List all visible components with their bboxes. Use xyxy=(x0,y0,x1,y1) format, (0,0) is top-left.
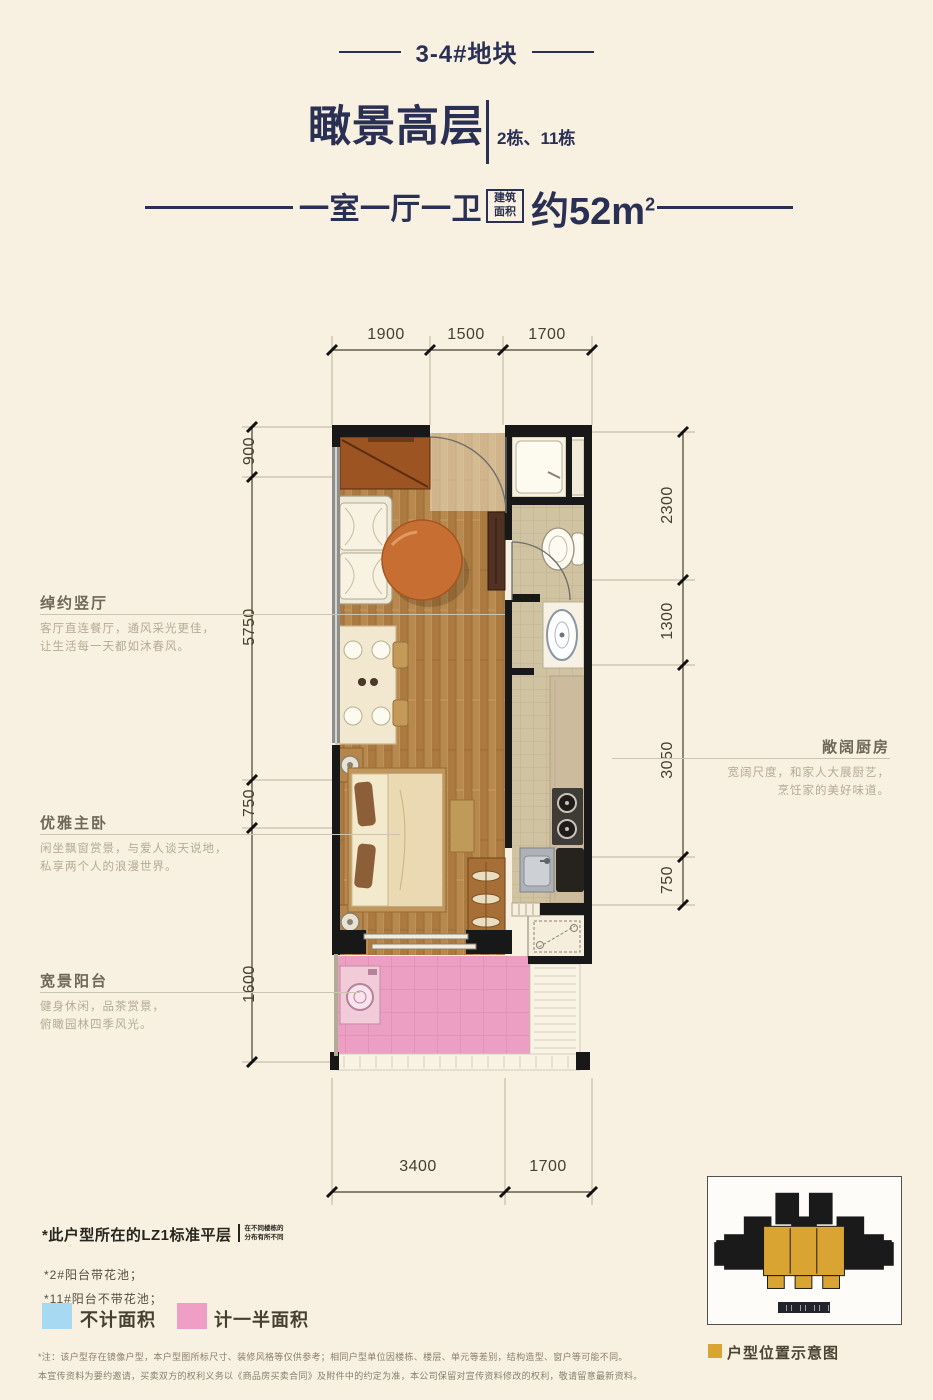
dim-top-1: 1900 xyxy=(351,326,421,344)
dim-left-1: 900 xyxy=(241,416,259,486)
dim-right-1: 2300 xyxy=(659,470,677,540)
dim-left-4: 1600 xyxy=(241,949,259,1019)
callout-kitchen-title: 敞阔厨房 xyxy=(690,736,890,757)
area-value: 约52m2 xyxy=(531,180,655,235)
legend-swatch-half-area xyxy=(177,1303,207,1329)
lot-line-left xyxy=(339,51,401,53)
dim-right-2: 1300 xyxy=(659,586,677,656)
layout-spec: 一室一厅一卫 xyxy=(299,184,482,228)
bed xyxy=(337,748,446,939)
callout-kitchen-desc: 宽阔尺度，和家人大展厨艺， 烹饪家的美好味道。 xyxy=(590,765,890,801)
kitchen-sink xyxy=(520,848,554,892)
lot-row: 3-4#地块 xyxy=(0,34,933,69)
site-caption-swatch xyxy=(708,1344,722,1358)
area-label-line2: 面积 xyxy=(488,206,522,220)
flue-box xyxy=(528,915,586,958)
callout-balcony-leader xyxy=(40,992,360,993)
toilet xyxy=(542,528,584,570)
window-wall xyxy=(332,447,340,743)
dim-top-3: 1700 xyxy=(512,326,582,344)
legend-swatch-no-area xyxy=(42,1303,72,1329)
site-caption: 户型位置示意图 xyxy=(727,1342,839,1363)
balcony-side-band xyxy=(530,964,580,1056)
dresser xyxy=(450,800,474,852)
spec-line-left xyxy=(145,206,293,209)
legend-label-no-area: 不计面积 xyxy=(80,1306,156,1332)
dim-left-2: 5750 xyxy=(241,592,259,662)
disclaimer: *注：该户型存在镜像户型，本户型图所标尺寸、装修风格等仅供参考；相同户型单位因楼… xyxy=(38,1348,703,1386)
note-1: *2#阳台带花池； xyxy=(44,1266,143,1283)
area-label-box: 建筑 面积 xyxy=(486,189,524,223)
vanity-sink xyxy=(543,602,584,668)
callout-balcony-desc: 健身休闲，品茶赏景， 俯瞰园林四季风光。 xyxy=(40,999,165,1035)
site-plan-label xyxy=(778,1302,830,1313)
dim-top-2: 1500 xyxy=(431,326,501,344)
shower-closet xyxy=(512,437,584,497)
kitchen-step xyxy=(512,903,540,916)
area-superscript: 2 xyxy=(645,194,655,214)
washing-machine xyxy=(340,966,380,1024)
cutting-board xyxy=(556,848,584,892)
callout-bedroom-title: 优雅主卧 xyxy=(40,812,108,833)
callout-kitchen-leader xyxy=(612,758,890,759)
dim-right-4: 750 xyxy=(659,845,677,915)
title-divider xyxy=(486,100,489,164)
stove xyxy=(552,788,583,845)
balcony-bottom-band xyxy=(330,1052,590,1070)
legend-label-half-area: 计一半面积 xyxy=(214,1306,309,1332)
floor-note-side: 在不同楼栋的 分布有所不同 xyxy=(238,1224,284,1242)
callout-living-title: 绰约竖厅 xyxy=(40,592,108,613)
tv-console xyxy=(488,512,505,590)
spec-line-right xyxy=(657,206,793,209)
area-label-line1: 建筑 xyxy=(488,192,522,206)
site-plan-box xyxy=(707,1176,902,1325)
dim-left-3: 750 xyxy=(241,768,259,838)
dim-bottom-1: 3400 xyxy=(383,1158,453,1176)
page-title: 瞰景高层 xyxy=(308,92,484,154)
dim-bottom-2: 1700 xyxy=(513,1158,583,1176)
callout-bedroom-leader xyxy=(40,834,400,835)
lot-line-right xyxy=(532,51,594,53)
callout-bedroom-desc: 闲坐飘窗赏景，与爱人谈天说地， 私享两个人的浪漫世界。 xyxy=(40,841,228,877)
callout-balcony-title: 宽景阳台 xyxy=(40,970,108,991)
balcony-left-frame xyxy=(334,954,338,1056)
lot-title: 3-4#地块 xyxy=(415,34,517,69)
site-plan-drawing xyxy=(708,1177,899,1322)
callout-living-leader xyxy=(40,614,505,615)
callout-living-desc: 客厅直连餐厅，通风采光更佳， 让生活每一天都如沐春风。 xyxy=(40,621,215,657)
building-numbers: 2栋、11栋 xyxy=(497,124,575,149)
entry-cabinet xyxy=(340,433,430,489)
floor-note: *此户型所在的LZ1标准平层 在不同楼栋的 分布有所不同 xyxy=(42,1224,284,1245)
